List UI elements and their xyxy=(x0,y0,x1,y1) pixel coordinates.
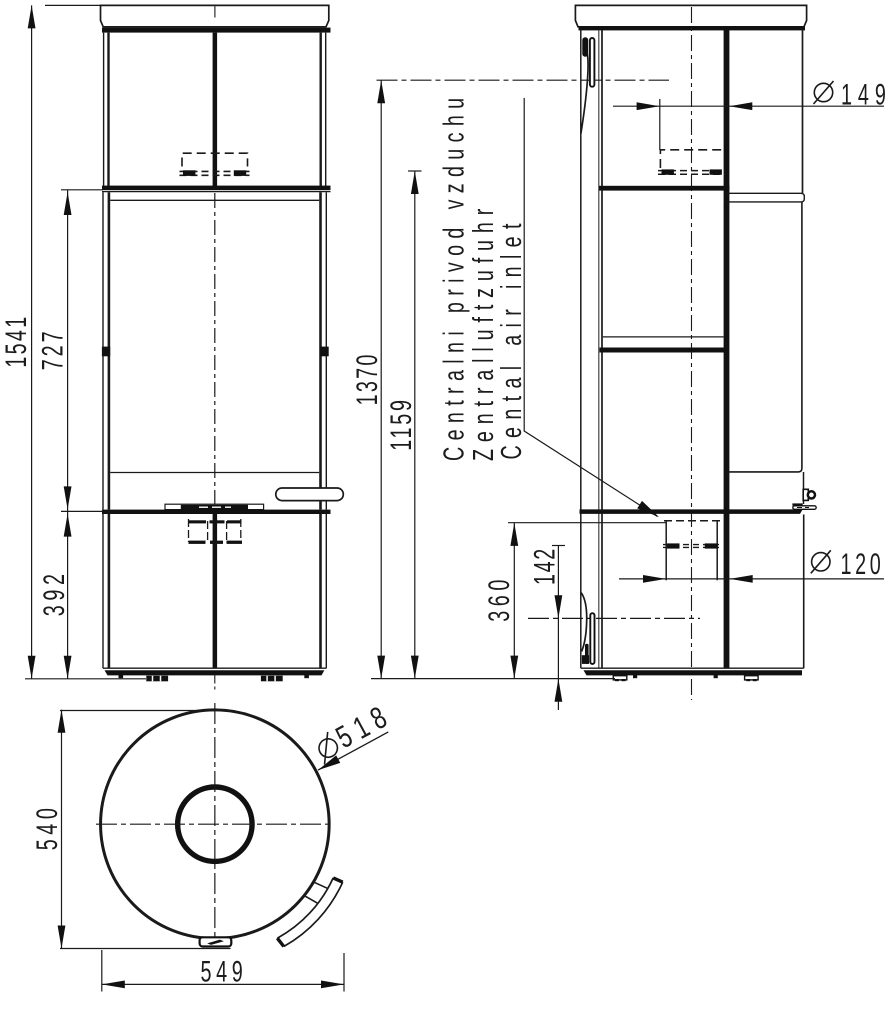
svg-text:727: 727 xyxy=(36,331,69,370)
svg-text:540: 540 xyxy=(31,808,64,850)
svg-text:120: 120 xyxy=(841,548,881,581)
svg-text:1159: 1159 xyxy=(385,400,418,451)
svg-text:142: 142 xyxy=(529,549,562,585)
svg-text:392: 392 xyxy=(38,574,71,616)
svg-text:360: 360 xyxy=(483,580,516,622)
svg-text:149: 149 xyxy=(841,79,886,112)
svg-text:549: 549 xyxy=(201,956,243,989)
